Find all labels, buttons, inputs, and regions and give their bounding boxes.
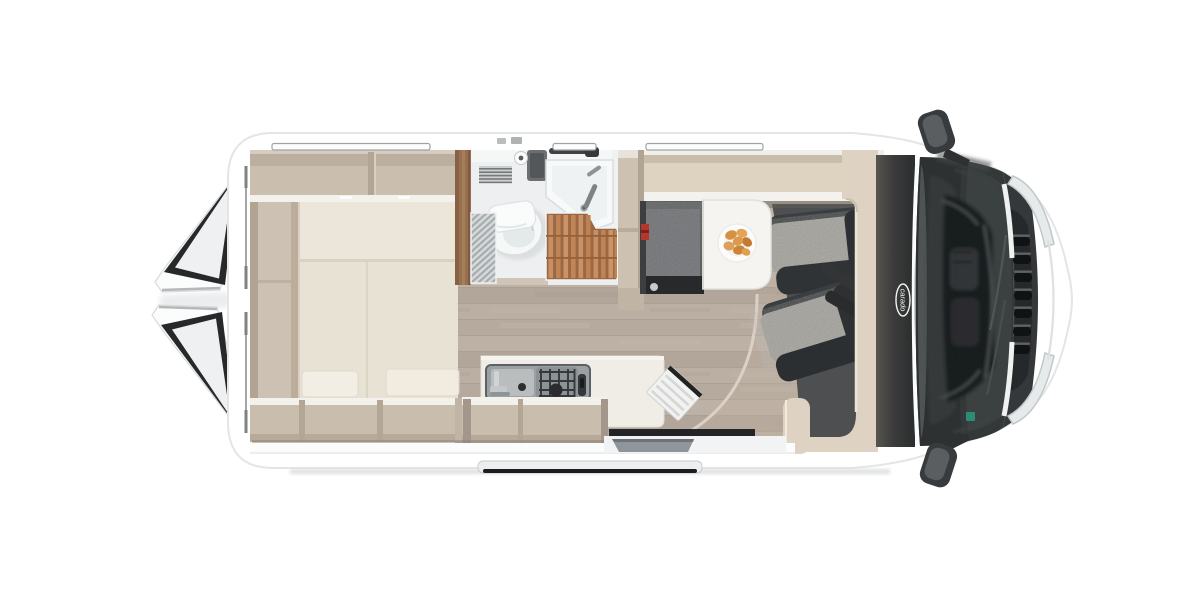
svg-text:carado: carado xyxy=(898,289,907,312)
